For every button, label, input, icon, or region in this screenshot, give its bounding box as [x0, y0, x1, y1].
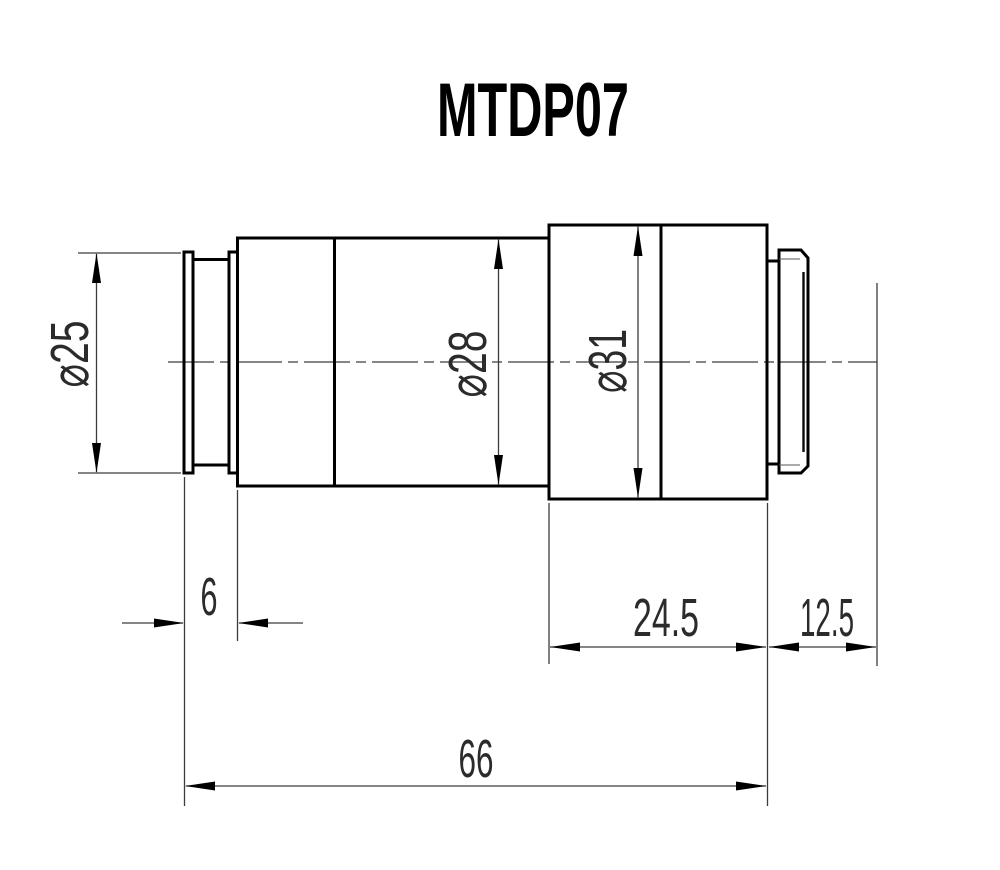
dim-label-dia28: ⌀28 — [438, 331, 498, 398]
dim-label-dia25: ⌀25 — [40, 321, 100, 388]
page-title: MTDP07 — [437, 68, 629, 153]
drawing-canvas: MTDP07 — [0, 0, 1000, 870]
dim-label-len245: 24.5 — [633, 588, 699, 648]
dim-label-len6: 6 — [201, 567, 218, 627]
dimension-len245: 24.5 — [549, 503, 768, 806]
arrowhead-right — [736, 782, 766, 791]
arrowhead-down — [494, 455, 503, 485]
dimension-dia25: ⌀25 — [40, 253, 181, 473]
arrowhead-up — [634, 226, 643, 256]
arrowhead-up — [92, 253, 101, 283]
dim-label-len125: 12.5 — [800, 588, 854, 648]
dimension-dia31: ⌀31 — [578, 226, 643, 498]
arrowhead-up — [494, 239, 503, 269]
arrowhead-down — [92, 443, 101, 473]
dimension-dia28: ⌀28 — [438, 239, 503, 485]
arrowhead-left — [185, 782, 215, 791]
arrowhead-left — [550, 643, 580, 652]
arrowhead-left — [238, 619, 268, 628]
technical-drawing: MTDP07 — [0, 0, 1000, 870]
arrowhead-right — [154, 619, 184, 628]
dimension-len6: 6 — [122, 477, 303, 806]
dim-label-len66: 66 — [459, 729, 494, 789]
dim-label-dia31: ⌀31 — [578, 329, 638, 393]
dimension-len66: 66 — [185, 729, 766, 791]
arrowhead-left — [769, 643, 799, 652]
arrowhead-right — [736, 643, 766, 652]
arrowhead-down — [634, 468, 643, 498]
